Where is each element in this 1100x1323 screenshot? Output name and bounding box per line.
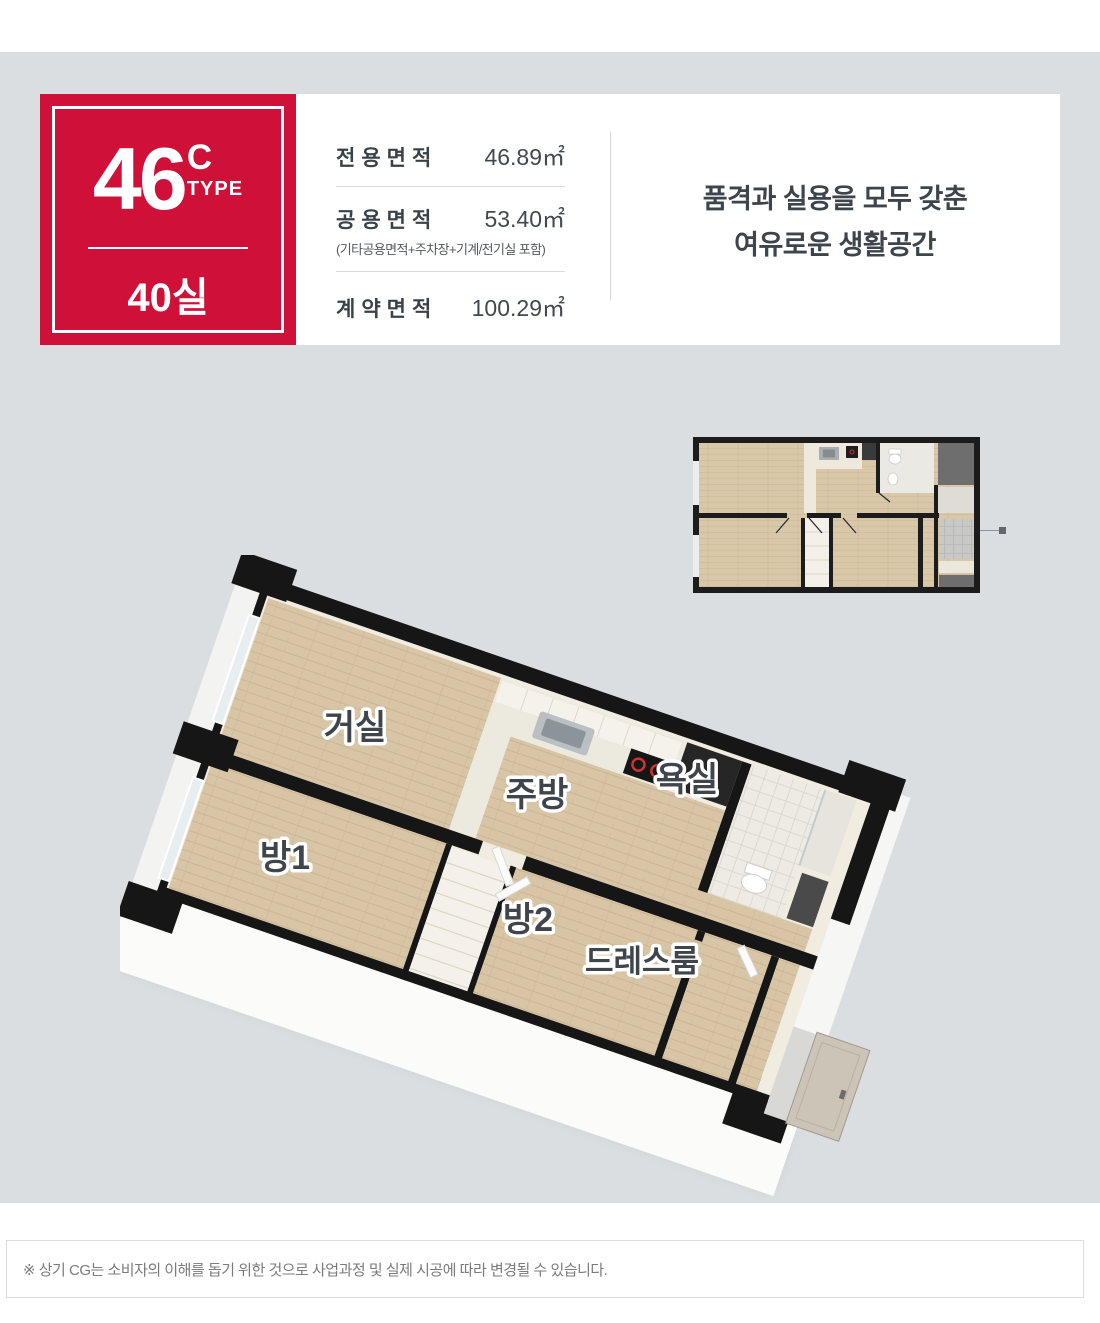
type-badge-border: 46 C TYPE 40실 (52, 106, 284, 333)
area-label: 공용면적 (336, 204, 437, 234)
type-title: 46 C TYPE (93, 135, 243, 223)
row-divider (336, 271, 565, 272)
tagline-line2: 여유로운 생활공간 (734, 223, 936, 262)
area-info-table: 전용면적 46.89㎡ 공용면적 53.40㎡ (기타공용면적+주차장+기계/전… (336, 94, 565, 323)
disclaimer-box: ※ 상기 CG는 소비자의 이해를 돕기 위한 것으로 사업과정 및 실제 시공… (6, 1240, 1084, 1298)
rotated-plan (120, 555, 957, 1200)
area-info-card: 전용면적 46.89㎡ 공용면적 53.40㎡ (기타공용면적+주차장+기계/전… (296, 94, 1060, 345)
area-label: 전용면적 (336, 142, 437, 172)
area-row-contract: 계약면적 100.29㎡ (336, 289, 565, 323)
room-label-kitchen: 주방 (506, 776, 569, 814)
area-value: 100.29㎡ (472, 289, 565, 323)
unit-count: 40실 (127, 265, 208, 323)
mini-entrance (939, 519, 974, 559)
type-badge: 46 C TYPE 40실 (40, 94, 296, 345)
area-value: 46.89㎡ (484, 138, 565, 172)
tagline-line1: 품격과 실용을 모두 갖춘 (703, 177, 967, 216)
area-note: (기타공용면적+주차장+기계/전기실 포함) (336, 239, 565, 258)
room-label-dressroom: 드레스룸 (585, 944, 699, 979)
room-label-bath: 욕실 (656, 761, 719, 799)
room-label-living: 거실 (324, 709, 387, 747)
area-row-common: 공용면적 53.40㎡ (336, 200, 565, 234)
area-label: 계약면적 (336, 293, 437, 323)
area-value: 53.40㎡ (484, 200, 565, 234)
floorplan-page: { "badge": { "number": "46", "suffix": "… (0, 0, 1100, 1323)
type-number: 46 (93, 135, 185, 223)
row-divider (336, 186, 565, 187)
mini-closet (938, 443, 974, 485)
leader-dot (999, 527, 1006, 534)
mini-bathroom (880, 443, 934, 493)
leader-line (980, 530, 1001, 531)
room-label-room2: 방2 (503, 901, 553, 939)
unit-header-card: 46 C TYPE 40실 전용면적 46.89㎡ 공용면적 53.40㎡ (기… (40, 94, 1060, 345)
badge-divider (88, 247, 248, 249)
area-row-exclusive: 전용면적 46.89㎡ (336, 138, 565, 172)
isometric-floorplan: 거실 주방 욕실 방1 방2 드레스룸 (120, 555, 980, 1200)
disclaimer-text: ※ 상기 CG는 소비자의 이해를 돕기 위한 것으로 사업과정 및 실제 시공… (7, 1259, 607, 1280)
room-label-room1: 방1 (260, 839, 310, 877)
tagline: 품격과 실용을 모두 갖춘 여유로운 생활공간 (610, 94, 1060, 345)
type-letter: C (187, 140, 212, 175)
type-word: TYPE (187, 179, 243, 199)
